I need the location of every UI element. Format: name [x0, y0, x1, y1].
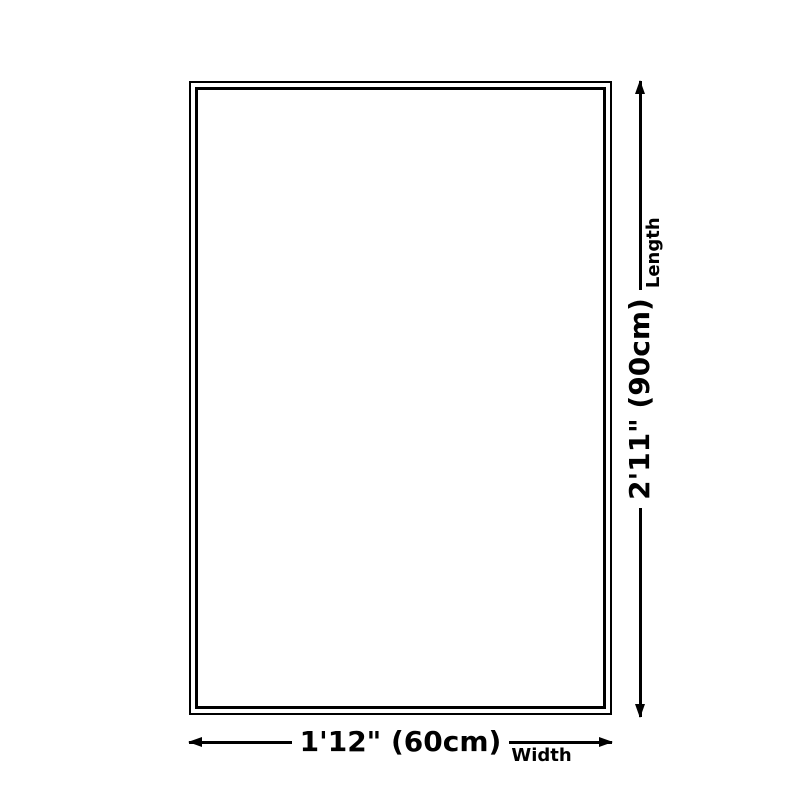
rug-outline: [189, 81, 612, 715]
width-value: 1'12" (60cm): [300, 728, 502, 756]
rug-inner-border: [195, 87, 606, 709]
length-label: Length: [645, 217, 663, 288]
arrow-left-icon: [189, 741, 292, 744]
dimension-diagram: 1'12" (60cm) Width 2'11" (90cm) Length: [0, 0, 800, 800]
arrow-down-icon: [639, 508, 642, 717]
arrow-up-icon: Length: [639, 81, 642, 290]
length-value: 2'11" (90cm): [626, 298, 654, 500]
width-label: Width: [511, 747, 571, 765]
width-dimension-arrow: 1'12" (60cm) Width: [189, 722, 612, 762]
length-dimension-arrow: 2'11" (90cm) Length: [620, 81, 660, 717]
arrow-right-icon: Width: [509, 741, 612, 744]
